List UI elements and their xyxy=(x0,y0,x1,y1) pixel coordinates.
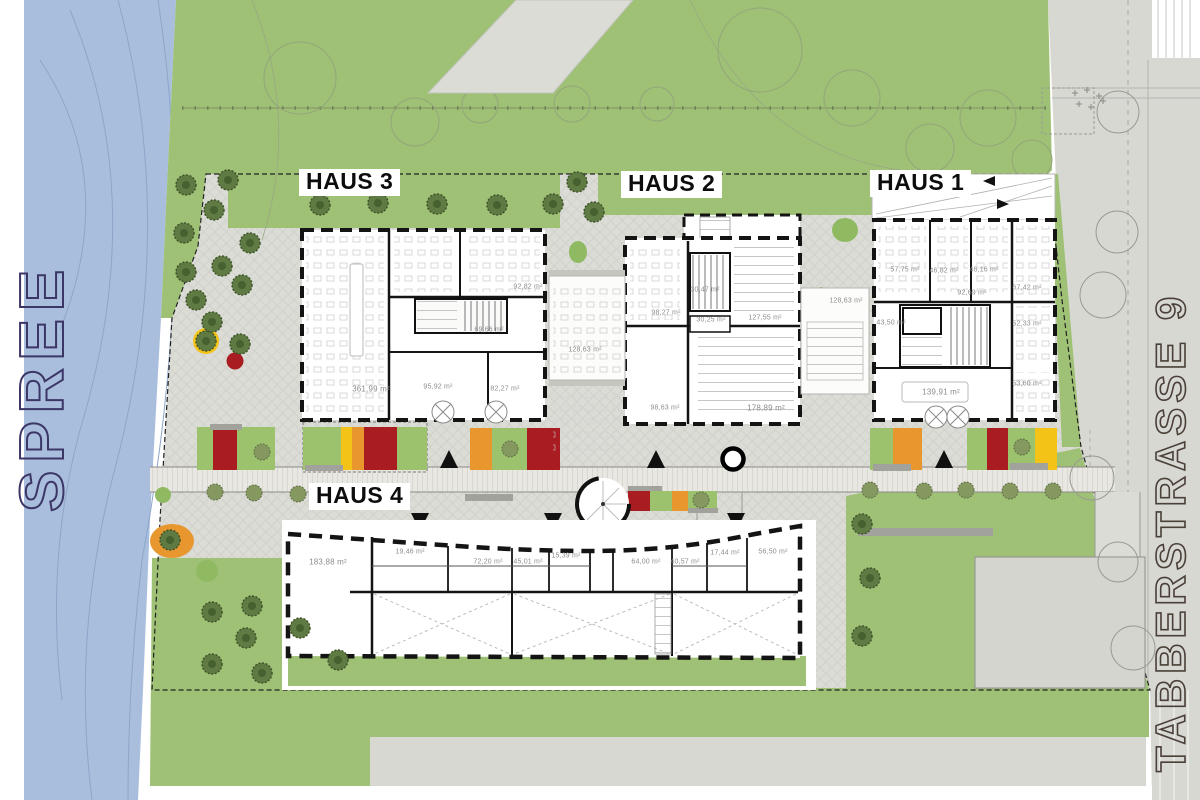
river-name-text: SPREE xyxy=(8,262,77,512)
room-area-label: 64,00 m² xyxy=(631,559,660,566)
room-area-label: 139,91 m² xyxy=(922,388,960,397)
site-plan-svg: SPREE TABBERSTRASSE 9 xyxy=(0,0,1200,800)
room-area-label: 56,50 m² xyxy=(758,549,787,556)
room-area-label: 17,44 m² xyxy=(710,550,739,557)
room-area-label: 127,55 m² xyxy=(748,315,781,322)
haus3-title: HAUS 3 xyxy=(299,169,400,196)
wintergarden-left xyxy=(549,270,625,386)
room-area-label: 30,25 m² xyxy=(696,317,725,324)
room-area-label: 15,39 m² xyxy=(551,553,580,560)
room-area-label: 67,42 m² xyxy=(1012,285,1041,292)
room-area-label: 19,46 m² xyxy=(395,549,424,556)
room-area-label: 52,33 m² xyxy=(1012,321,1041,328)
room-area-label: 53,60 m² xyxy=(1012,381,1041,388)
room-area-label: 361,99 m² xyxy=(352,385,390,394)
neighbor-building xyxy=(975,557,1145,688)
room-area-label: 183,88 m² xyxy=(309,558,347,567)
room-area-label: 69,66 m² xyxy=(474,327,503,334)
wintergarden-area-label: 128,63 m² xyxy=(829,298,862,305)
wintergarden-area-label: 128,63 m² xyxy=(568,347,601,354)
room-area-label: 43,50 m² xyxy=(876,320,905,327)
street-name-text: TABBERSTRASSE 9 xyxy=(1147,292,1194,772)
room-area-label: 57,75 m² xyxy=(890,267,919,274)
room-area-label: 98,27 m² xyxy=(651,310,680,317)
outdoor-furniture xyxy=(553,395,621,457)
haus2-title: HAUS 2 xyxy=(621,171,722,198)
room-area-label: 46,16 m² xyxy=(969,267,998,274)
room-area-label: 92,82 m² xyxy=(513,284,542,291)
site-plan: SPREE TABBERSTRASSE 9 HAUS 3 HAUS 2 HAUS… xyxy=(0,0,1200,800)
room-area-label: 46,82 m² xyxy=(929,268,958,275)
room-area-label: 98,63 m² xyxy=(650,405,679,412)
haus1-title: HAUS 1 xyxy=(870,170,971,197)
haus4-title: HAUS 4 xyxy=(309,483,410,510)
room-area-label: 45,01 m² xyxy=(513,559,542,566)
room-area-label: 92,69 m² xyxy=(957,290,986,297)
room-area-label: 82,27 m² xyxy=(490,386,519,393)
room-area-label: 30,47 m² xyxy=(690,287,719,294)
bottom-margin xyxy=(140,786,1152,800)
building-haus4 xyxy=(282,520,816,690)
room-area-label: 40,57 m² xyxy=(670,559,699,566)
room-area-label: 178,89 m² xyxy=(747,404,785,413)
room-area-label: 95,92 m² xyxy=(423,384,452,391)
bottom-street xyxy=(370,737,1146,786)
room-area-label: 72,20 m² xyxy=(473,559,502,566)
manhole-icon xyxy=(723,449,744,470)
